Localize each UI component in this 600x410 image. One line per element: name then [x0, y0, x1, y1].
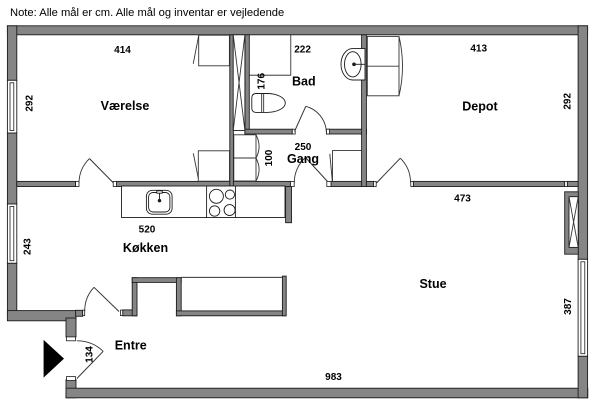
svg-text:176: 176 [256, 73, 267, 90]
svg-text:292: 292 [25, 95, 36, 112]
svg-text:473: 473 [454, 194, 471, 205]
svg-text:Gang: Gang [287, 152, 319, 166]
svg-text:413: 413 [470, 44, 487, 55]
svg-text:Bad: Bad [292, 75, 316, 89]
svg-text:Køkken: Køkken [123, 241, 168, 255]
svg-text:Entre: Entre [115, 339, 147, 353]
svg-text:243: 243 [22, 238, 33, 255]
svg-text:292: 292 [562, 93, 573, 110]
svg-text:134: 134 [84, 346, 95, 363]
svg-text:Note: Alle mål er cm. Alle mål: Note: Alle mål er cm. Alle mål og invent… [10, 7, 284, 19]
svg-text:Depot: Depot [462, 100, 498, 114]
svg-text:414: 414 [114, 45, 131, 56]
svg-text:387: 387 [563, 298, 574, 315]
svg-text:250: 250 [295, 142, 312, 153]
svg-text:520: 520 [139, 225, 156, 236]
svg-text:Værelse: Værelse [101, 99, 150, 113]
svg-text:100: 100 [264, 149, 275, 166]
svg-text:Stue: Stue [419, 277, 446, 291]
svg-text:222: 222 [294, 45, 311, 56]
svg-text:983: 983 [325, 372, 342, 383]
